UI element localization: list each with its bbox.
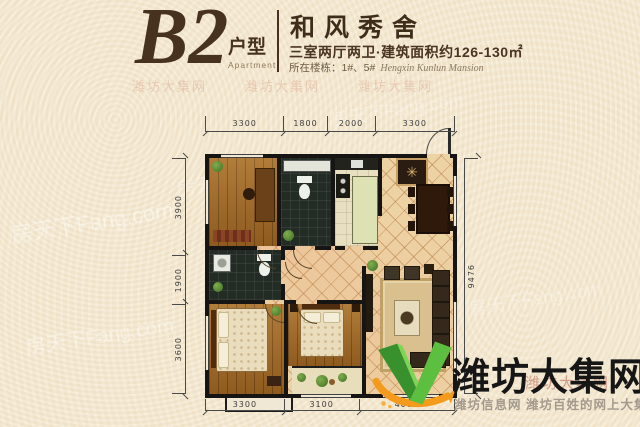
wall bbox=[317, 300, 362, 304]
plan-type-label: 户型 bbox=[228, 32, 276, 59]
wall bbox=[209, 300, 265, 304]
washing-machine bbox=[213, 254, 231, 272]
floor-label: 所在楼栋：1#、5# bbox=[289, 62, 375, 74]
kitchen-sink bbox=[351, 160, 363, 168]
plant-icon bbox=[367, 260, 378, 271]
toilet-tank bbox=[297, 176, 312, 183]
wall bbox=[281, 284, 285, 300]
plan-type-block: 户型 Apartment bbox=[228, 32, 276, 70]
wall bbox=[209, 246, 257, 250]
dresser bbox=[213, 230, 251, 242]
wall bbox=[363, 246, 378, 250]
dim-bottom-1: 3300 bbox=[205, 399, 284, 410]
dim-label: 3600 bbox=[175, 337, 183, 361]
plant-icon bbox=[213, 282, 223, 292]
toilet-bowl bbox=[299, 184, 310, 199]
plant-icon bbox=[212, 161, 223, 172]
plan-type-en: Apartment bbox=[228, 60, 276, 70]
wall bbox=[284, 300, 288, 394]
dim-label: 1800 bbox=[293, 120, 317, 128]
pillow bbox=[323, 312, 340, 323]
window bbox=[205, 316, 209, 370]
plant-icon bbox=[316, 375, 328, 387]
entrance-door-swing bbox=[426, 128, 449, 155]
dim-left-2: 1900 bbox=[172, 255, 185, 303]
dim-top-1: 3300 bbox=[205, 116, 283, 131]
stove bbox=[336, 174, 350, 198]
watermark-fang: 房天下Fang.com bbox=[24, 309, 176, 361]
bath-counter bbox=[283, 160, 331, 172]
dim-bottom-2: 3100 bbox=[284, 399, 359, 410]
wall bbox=[335, 246, 345, 250]
medallion-glyph: ✳ bbox=[406, 165, 418, 179]
dim-label: 3300 bbox=[233, 401, 257, 409]
wall bbox=[288, 300, 296, 304]
dimension-left: 3900 1900 3600 bbox=[172, 158, 186, 394]
header-divider bbox=[277, 10, 279, 72]
window bbox=[301, 394, 351, 398]
dining-chair bbox=[408, 221, 415, 231]
armchair bbox=[384, 266, 400, 280]
dim-left-1: 3900 bbox=[172, 158, 185, 255]
tv-cabinet bbox=[366, 274, 373, 332]
desk bbox=[255, 168, 275, 222]
dim-label: 2000 bbox=[339, 120, 363, 128]
v-check-icon bbox=[372, 334, 456, 412]
window bbox=[221, 154, 263, 158]
kitchen-island bbox=[352, 176, 378, 244]
plant-icon bbox=[297, 373, 306, 382]
pillow bbox=[218, 342, 229, 368]
dim-label: 3300 bbox=[403, 120, 427, 128]
plant-icon bbox=[338, 373, 347, 382]
ceiling-medallion-icon: ✳ bbox=[396, 158, 428, 186]
wall bbox=[281, 250, 285, 260]
site-name: 潍坊大集网 bbox=[452, 346, 640, 401]
door-swing bbox=[285, 262, 302, 279]
watermark-fang: 房天下Fang.com bbox=[467, 275, 603, 322]
plan-code-letter: B2 bbox=[135, 0, 228, 83]
dim-left-3: 3600 bbox=[172, 304, 185, 394]
site-logo: 潍坊大集网 潍坊信息网 潍坊百姓的网上大集 bbox=[368, 328, 640, 427]
wall bbox=[378, 158, 382, 216]
wall bbox=[277, 158, 281, 246]
dim-top-3: 2000 bbox=[327, 116, 375, 131]
dim-label: 3900 bbox=[175, 195, 183, 219]
pillow bbox=[218, 312, 229, 338]
dim-label: 3100 bbox=[309, 401, 333, 409]
wall bbox=[331, 158, 335, 246]
dim-top-2: 1800 bbox=[283, 116, 326, 131]
site-tagline: 潍坊信息网 潍坊百姓的网上大集 bbox=[454, 394, 640, 413]
dining-chair bbox=[408, 204, 415, 214]
nightstand bbox=[352, 304, 360, 312]
wall bbox=[315, 246, 331, 250]
dim-label: 3300 bbox=[233, 120, 257, 128]
wall bbox=[362, 266, 366, 398]
watermark-fang: 房天下Fang.com bbox=[9, 192, 176, 249]
dim-label: 1900 bbox=[175, 268, 183, 292]
window bbox=[205, 180, 209, 224]
dim-label: 9476 bbox=[468, 264, 476, 288]
dining-chair bbox=[408, 187, 415, 197]
watermark-site: 潍坊大集网 bbox=[358, 76, 433, 95]
dining-table bbox=[416, 184, 450, 234]
floor-label-en: Hengxin Kunlun Mansion bbox=[380, 63, 483, 74]
bench bbox=[267, 376, 281, 386]
plant-icon bbox=[283, 230, 294, 241]
window bbox=[453, 176, 457, 226]
armchair bbox=[404, 266, 420, 280]
plan-subtitle: 三室两厅两卫·建筑面积约126-130㎡ bbox=[289, 42, 523, 62]
community-name: 和风秀舍 bbox=[290, 8, 426, 44]
small-table bbox=[329, 379, 335, 385]
stool bbox=[243, 188, 255, 200]
dim-top-4: 3300 bbox=[375, 116, 455, 131]
floor-info: 所在楼栋：1#、5#Hengxin Kunlun Mansion bbox=[289, 60, 484, 75]
dimension-top: 3300 1800 2000 3300 bbox=[205, 116, 455, 132]
